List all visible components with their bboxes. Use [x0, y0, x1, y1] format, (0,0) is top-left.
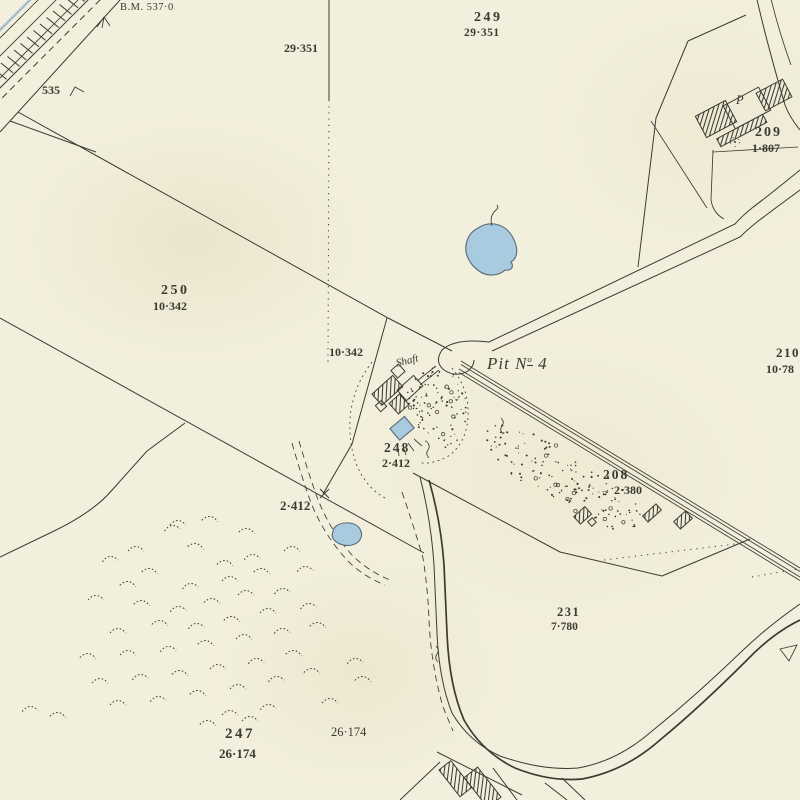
parcel-210-area-clipped: 10·78 — [766, 363, 794, 375]
map-linework — [0, 0, 800, 800]
buildings-bottom — [439, 761, 501, 800]
pond-inlet — [491, 205, 498, 226]
parcel-249-number: 249 — [474, 11, 503, 25]
buildings-208-strip — [574, 504, 693, 529]
pit-no4-workings — [350, 362, 468, 498]
map-page: { "map": { "colors": { "paper": "#f2efdc… — [0, 0, 800, 800]
parcel-209-number: 209 — [755, 126, 782, 140]
parcel-249-area: 29·351 — [464, 28, 500, 40]
parcel-210-number-clipped: 210 — [776, 346, 800, 359]
area-29-351-west: 29·351 — [284, 42, 318, 54]
parcel-209-area: 1·807 — [752, 142, 780, 154]
pond-small — [332, 523, 362, 546]
parcel-231-number: 231 — [557, 606, 580, 619]
area-2-412-west: 2·412 — [280, 499, 310, 512]
gate-mark — [70, 87, 84, 96]
parcel-248-area: 2·412 — [382, 457, 410, 469]
parcel-208-number: 208 — [603, 468, 629, 482]
pit-label-prefix: Pit N — [487, 354, 527, 373]
survey-x-mark — [320, 489, 329, 498]
pond-large — [466, 224, 517, 275]
small-building — [674, 511, 693, 529]
pit-label-suffix: 4 — [533, 354, 548, 373]
small-building — [643, 504, 662, 522]
road-number-535: 535 — [42, 84, 60, 96]
benchmark-label: B.M. 537·0 — [120, 3, 174, 14]
parcel-247-number: 247 — [225, 727, 255, 742]
area-26-174-east: 26·174 — [331, 726, 366, 739]
spoil-heap-stipple — [407, 366, 641, 529]
colliery-building — [389, 394, 409, 414]
pit-no4-label: Pit No 4 — [466, 338, 548, 389]
flag-triangle-mark — [780, 645, 797, 661]
parcel-248-number: 248 — [384, 441, 410, 455]
parcel-250-area: 10·342 — [153, 300, 187, 312]
small-building-open — [588, 518, 596, 526]
area-10-342-mid: 10·342 — [329, 346, 363, 358]
pit-reservoir — [390, 416, 414, 440]
parcel-231-area: 7·780 — [551, 622, 578, 634]
building-block — [756, 79, 792, 111]
building-p-label: P — [736, 94, 744, 107]
map-canvas: B.M. 537·0 535 29·351 249 29·351 P 209 1… — [0, 0, 800, 800]
rough-pasture-tufts — [22, 516, 371, 726]
parcel-250-number: 250 — [161, 284, 190, 298]
parcel-208-area: 2·380 — [614, 484, 642, 496]
parcel-247-area: 26·174 — [219, 747, 256, 760]
